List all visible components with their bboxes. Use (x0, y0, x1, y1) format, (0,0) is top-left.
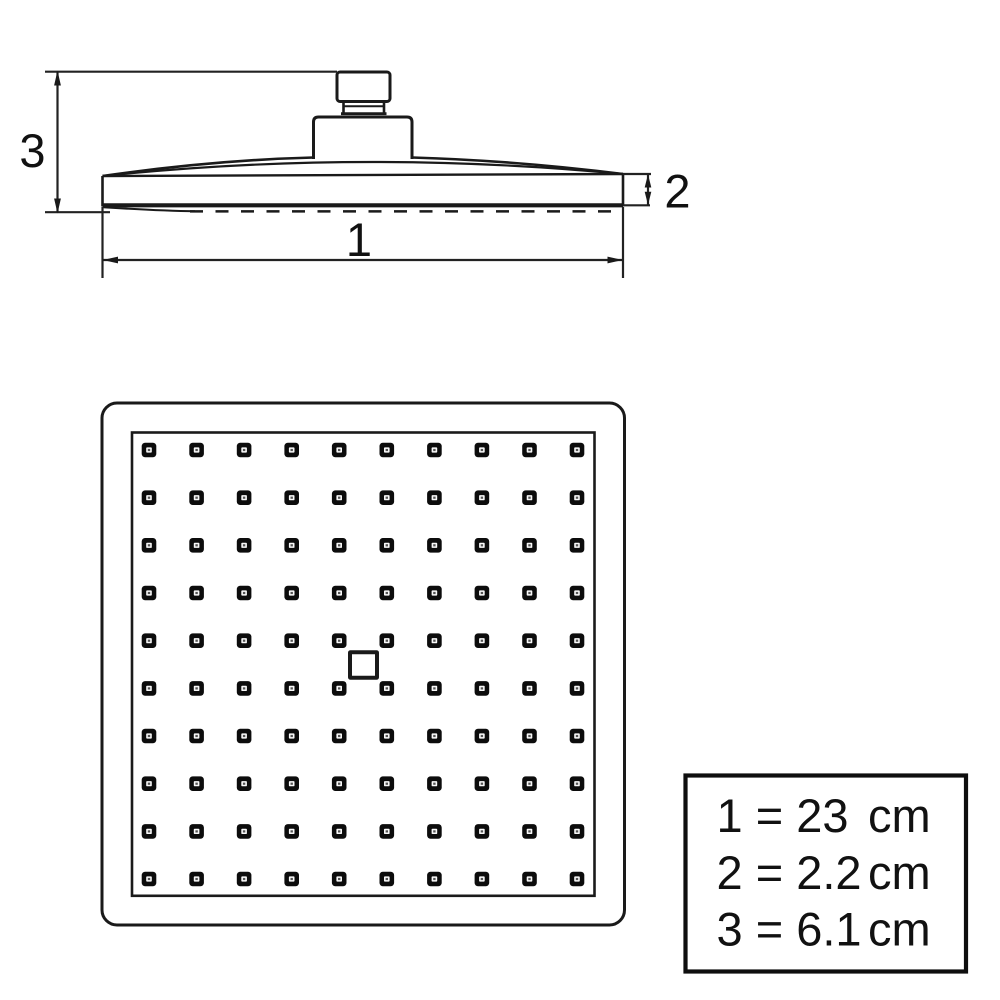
svg-text:2: 2 (664, 165, 690, 218)
svg-text:1 = 23cm: 1 = 23cm (717, 789, 931, 842)
svg-text:1: 1 (346, 213, 372, 266)
svg-text:3 = 6.1cm: 3 = 6.1cm (717, 903, 931, 956)
svg-text:2 = 2.2cm: 2 = 2.2cm (717, 846, 931, 899)
svg-text:3: 3 (19, 124, 45, 177)
